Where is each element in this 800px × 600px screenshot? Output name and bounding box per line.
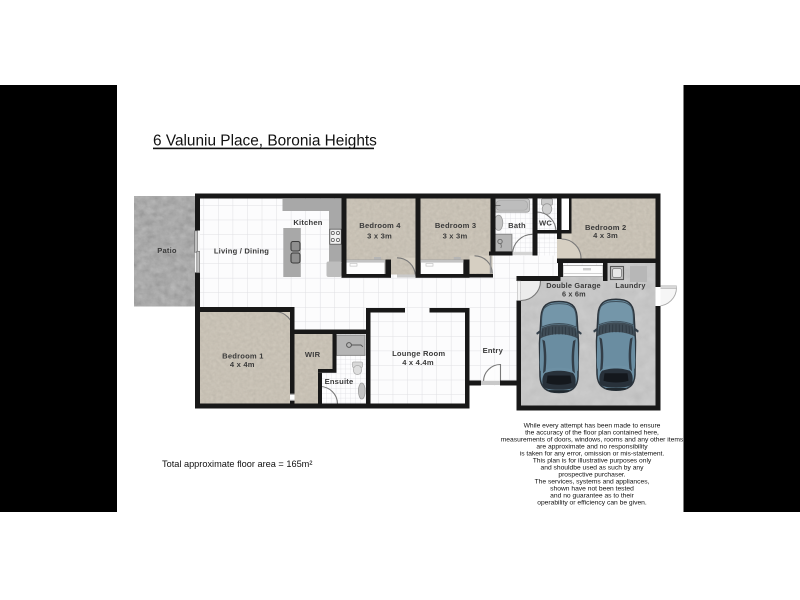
svg-text:6 Valuniu Place, Boronia Heigh: 6 Valuniu Place, Boronia Heights bbox=[153, 133, 377, 150]
svg-text:WC: WC bbox=[539, 219, 552, 228]
svg-text:and no guarantee as to their: and no guarantee as to their bbox=[550, 493, 634, 500]
svg-text:operability or efficiency can: operability or efficiency can be given. bbox=[537, 500, 647, 507]
svg-text:Laundry: Laundry bbox=[615, 281, 646, 290]
svg-text:the accuracy of the floor plan: the accuracy of the floor plan contained… bbox=[525, 430, 659, 437]
svg-text:shown have not been tested: shown have not been tested bbox=[550, 486, 634, 493]
svg-text:and shouldbe used as such by a: and shouldbe used as such by any bbox=[541, 465, 645, 472]
svg-text:3 x 3m: 3 x 3m bbox=[443, 231, 468, 240]
svg-text:Living / Dining: Living / Dining bbox=[214, 247, 269, 256]
svg-text:Total approximate floor area =: Total approximate floor area = 165m² bbox=[162, 459, 312, 469]
svg-text:are approximate and no respons: are approximate and no responsibility bbox=[536, 444, 648, 451]
svg-text:prospective purchaser.: prospective purchaser. bbox=[558, 472, 625, 479]
svg-text:4 x 3m: 4 x 3m bbox=[593, 231, 618, 240]
svg-text:Lounge Room: Lounge Room bbox=[392, 349, 445, 358]
svg-text:The services, systems and appl: The services, systems and appliances, bbox=[535, 479, 650, 486]
svg-text:While every attempt has been m: While every attempt has been made to ens… bbox=[524, 423, 661, 430]
svg-text:Bedroom 3: Bedroom 3 bbox=[435, 221, 476, 230]
svg-text:3 x 3m: 3 x 3m bbox=[367, 231, 392, 240]
svg-text:WIR: WIR bbox=[305, 350, 321, 359]
svg-text:Bedroom 4: Bedroom 4 bbox=[359, 221, 401, 230]
svg-text:Patio: Patio bbox=[157, 246, 177, 255]
svg-text:Entry: Entry bbox=[483, 346, 504, 355]
svg-text:Kitchen: Kitchen bbox=[293, 218, 322, 227]
svg-text:6 x 6m: 6 x 6m bbox=[562, 290, 586, 299]
svg-text:This plan is for illustrative: This plan is for illustrative purposes o… bbox=[533, 458, 652, 465]
svg-text:measurements of doors, windows: measurements of doors, windows, rooms an… bbox=[501, 437, 684, 444]
svg-text:Bath: Bath bbox=[508, 221, 526, 230]
svg-text:Double Garage: Double Garage bbox=[546, 281, 601, 290]
svg-text:4 x 4.4m: 4 x 4.4m bbox=[402, 358, 434, 367]
svg-text:4 x 4m: 4 x 4m bbox=[230, 360, 255, 369]
svg-text:is taken for any error, omissi: is taken for any error, omission or mis-… bbox=[520, 451, 665, 458]
svg-text:Ensuite: Ensuite bbox=[325, 377, 354, 386]
